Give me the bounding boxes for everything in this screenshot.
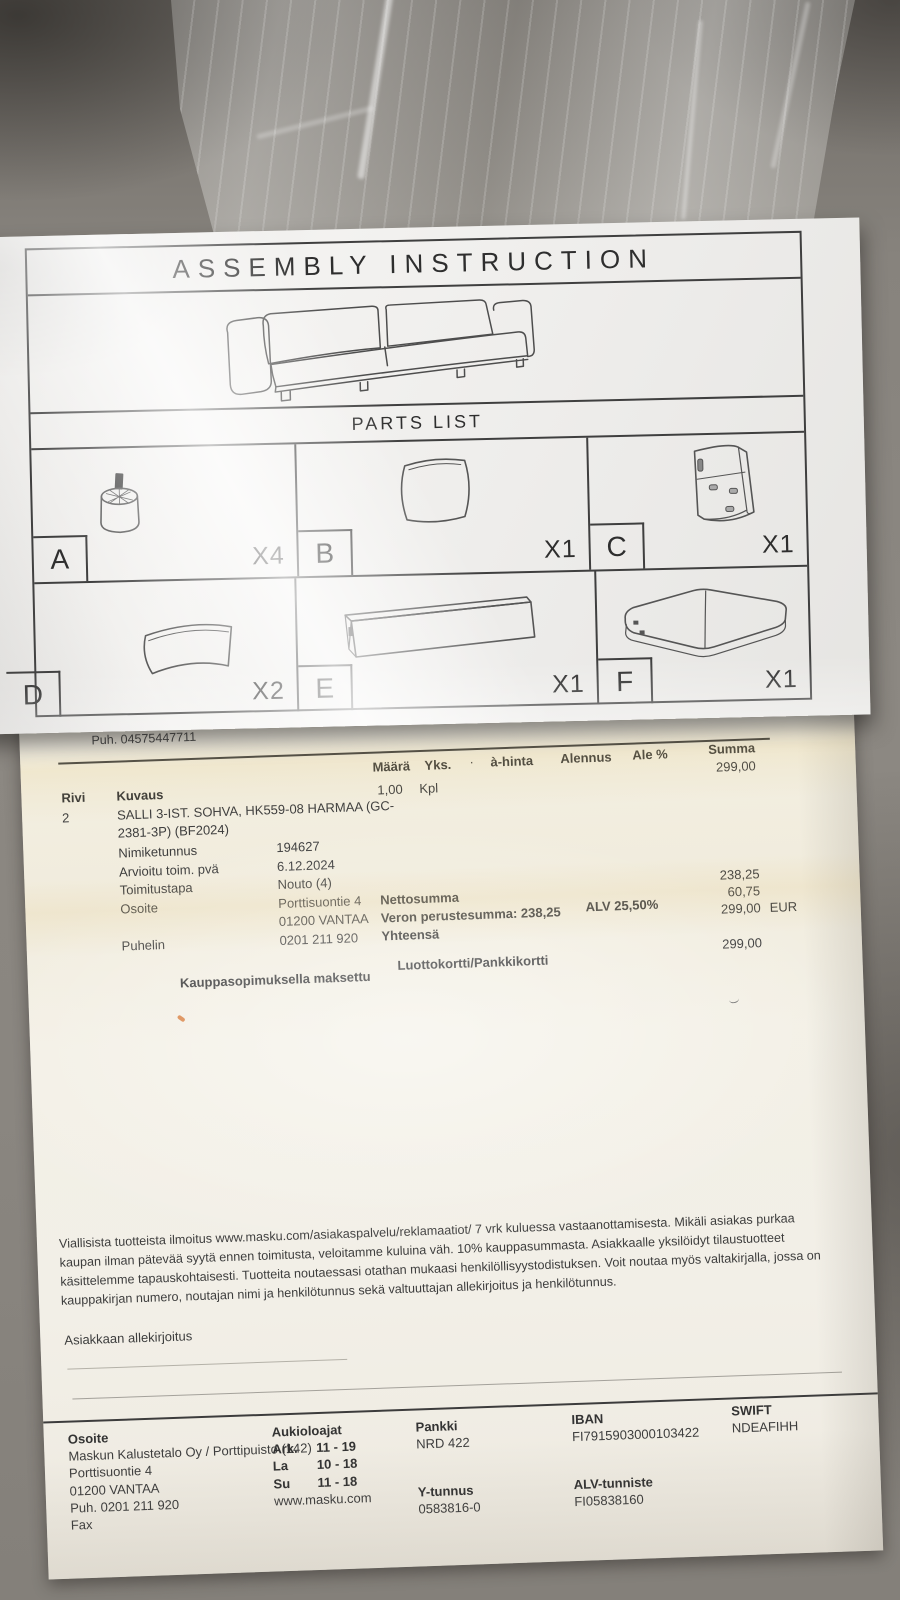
field-value: 01200 VANTAA [279, 911, 369, 929]
receipt-customer-phone: Puh. 04575447711 [91, 730, 196, 748]
plastic-wrinkle-highlight [681, 20, 702, 220]
field-value: Porttisuontie 4 [278, 893, 362, 911]
summa-value: 299,00 [661, 758, 756, 776]
paper-crease-line [72, 1372, 842, 1400]
part-a-leg-drawing [86, 470, 154, 544]
veron-perustesumma-label: Veron perustesumma: 238,25 [381, 904, 561, 925]
col-header-yks: Yks. [424, 757, 451, 773]
part-b-cushion-drawing [388, 448, 486, 539]
col-header-a-hinta: à-hinta [490, 753, 533, 769]
footer-alv-tunniste-value: FI05838160 [574, 1491, 654, 1511]
part-c-side-panel-drawing [666, 438, 760, 545]
yhteensa-value: 299,00 [665, 900, 760, 918]
assembly-title: ASSEMBLY INSTRUCTION [172, 243, 655, 285]
assembly-instruction-sheet: ASSEMBLY INSTRUCTION [0, 217, 871, 735]
signature-label: Asiakkaan allekirjoitus [64, 1328, 192, 1347]
kuvaus-label: Kuvaus [116, 787, 163, 804]
part-count-a: X4 [252, 542, 285, 572]
part-cell-b: B X1 [294, 438, 589, 577]
rivi-label: Rivi [61, 790, 85, 806]
footer-bank-column: Pankki NRD 422 [415, 1417, 470, 1453]
part-cell-c: C X1 [586, 433, 807, 570]
col-header-alennus: Alennus [560, 749, 612, 766]
plastic-wrinkle-highlight [256, 106, 374, 140]
part-count-d: X2 [252, 677, 285, 707]
footer-iban-column: IBAN FI7915903000103422 [571, 1407, 699, 1446]
footer-swift-column: SWIFT NDEAFIHH [731, 1400, 799, 1437]
alv-value: 60,75 [665, 883, 760, 901]
item-description-line2: 2381-3P) (BF2024) [117, 822, 229, 841]
col-header-dot: · [469, 754, 474, 769]
item-fields: Nimiketunnus194627 Arvioitu toim. pvä6.1… [118, 836, 370, 956]
receipt-document: Puh. 04575447711 Määrä Yks. · à-hinta Al… [18, 671, 883, 1580]
part-cell-a: A X4 [31, 444, 297, 582]
plastic-wrap [0, 0, 900, 242]
footer-business-id-column: Y-tunnus 0583816-0 [418, 1481, 481, 1518]
part-label-e: E [298, 664, 353, 711]
field-value: 194627 [276, 839, 320, 856]
currency-label: EUR [769, 899, 797, 915]
footer-website: www.masku.com [274, 1489, 372, 1510]
part-cell-e: E X1 [294, 572, 597, 712]
footer-vat-column: ALV-tunniste FI05838160 [573, 1473, 653, 1510]
field-value: 6.12.2024 [277, 857, 335, 874]
nettosumma-label: Nettosumma [380, 890, 459, 908]
part-cell-f: F X1 [594, 567, 810, 705]
terms-paragraph: Viallisista tuotteista ilmoitus www.mask… [59, 1208, 822, 1311]
qty-value: 1,00 [377, 782, 403, 798]
part-count-e: X1 [552, 670, 585, 700]
plastic-wrinkle-highlight [357, 0, 394, 179]
col-header-maara: Määrä [372, 758, 410, 774]
footer-hours-column: Aukioloajat Ark.11 - 19 La10 - 18 Su11 -… [271, 1420, 371, 1509]
part-count-f: X1 [765, 665, 798, 695]
nettosumma-value: 238,25 [664, 866, 759, 884]
payment-amount: 299,00 [667, 935, 762, 953]
part-label-c: C [590, 522, 645, 569]
printed-frame: ASSEMBLY INSTRUCTION [25, 231, 812, 718]
part-label-f: F [598, 657, 653, 704]
parts-grid-row-2: D X2 E X1 [4, 567, 810, 718]
field-value: Nouto (4) [277, 875, 332, 892]
footer-swift-value: NDEAFIHH [732, 1417, 799, 1437]
part-label-a: A [33, 535, 88, 582]
footer-iban-value: FI7915903000103422 [572, 1424, 700, 1446]
pen-curl-mark [728, 994, 739, 1004]
footer-bank-value: NRD 422 [416, 1434, 470, 1453]
part-e-front-rail-drawing [331, 589, 549, 679]
part-count-b: X1 [544, 535, 577, 565]
plastic-wrinkle-highlight [770, 1, 810, 168]
payment-left-label: Kauppasopimuksella maksettu [180, 969, 371, 991]
sofa-illustration-row [28, 279, 803, 415]
sofa-line-drawing [144, 285, 616, 408]
rivi-value: 2 [62, 810, 70, 825]
part-count-c: X1 [762, 530, 795, 560]
footer-bank-label: Pankki [415, 1417, 469, 1436]
footer-ytunnus-value: 0583816-0 [418, 1499, 481, 1518]
unit-value: Kpl [419, 780, 438, 796]
yhteensa-label: Yhteensä [381, 926, 439, 943]
field-value: 0201 211 920 [279, 930, 358, 948]
part-cell-d: D X2 [4, 578, 297, 718]
part-label-b: B [298, 529, 353, 576]
alv-rate-label: ALV 25,50% [585, 897, 658, 915]
orange-speck [177, 1015, 186, 1023]
signature-line [67, 1359, 347, 1370]
part-label-d: D [6, 671, 61, 718]
col-header-summa: Summa [660, 740, 755, 758]
parts-grid-row-1: A X4 B X1 [31, 433, 807, 585]
payment-method: Luottokortti/Pankkikortti [397, 953, 548, 973]
footer-ytunnus-label: Y-tunnus [418, 1481, 481, 1500]
part-d-cushion-drawing [133, 613, 249, 695]
parts-list-title: PARTS LIST [351, 411, 483, 435]
photo-scene: Puh. 04575447711 Määrä Yks. · à-hinta Al… [0, 0, 900, 1600]
